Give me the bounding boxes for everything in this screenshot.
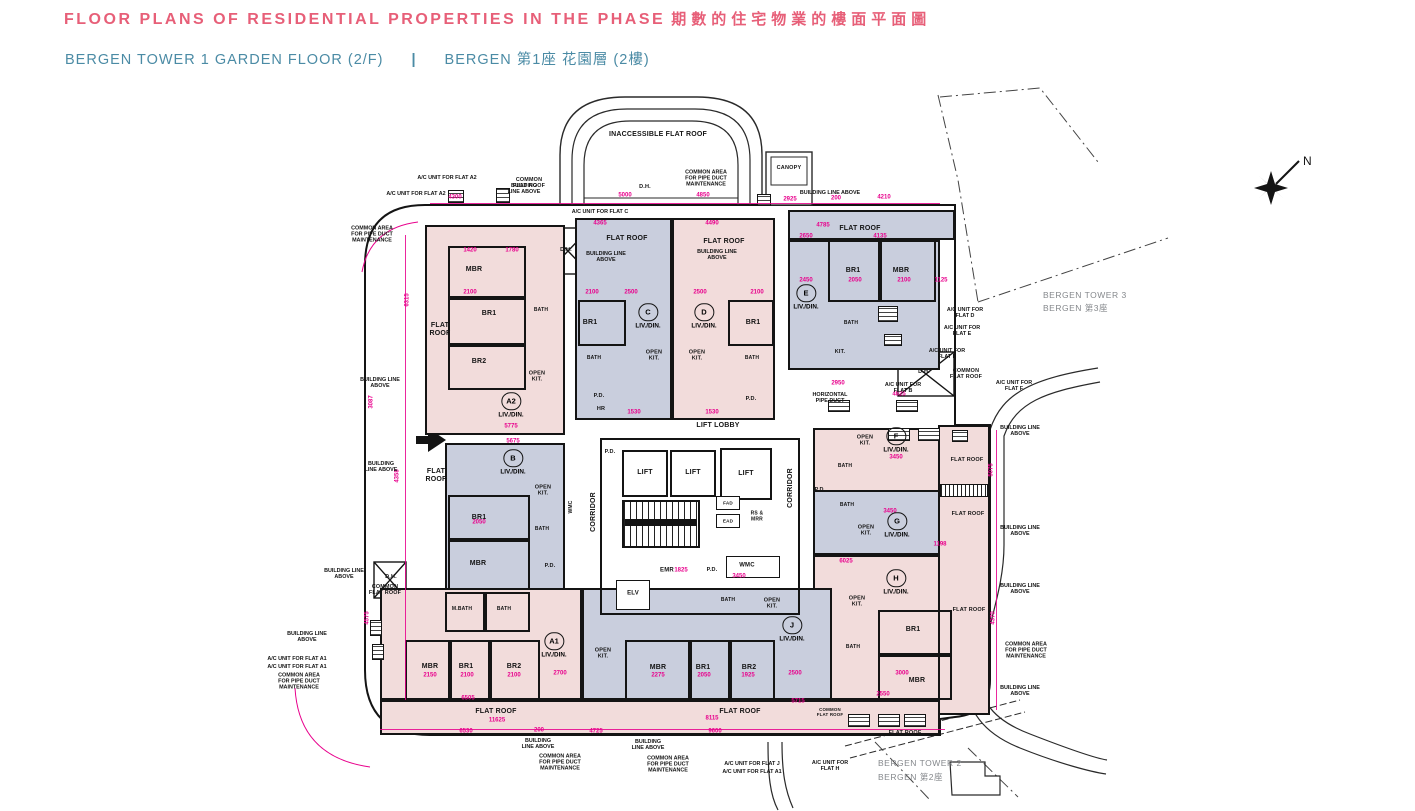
dimension-label: 9600 — [708, 729, 721, 736]
room-label: CORRIDOR — [590, 492, 598, 532]
unit-letter: F — [886, 427, 906, 445]
room-label: P.D. — [605, 449, 616, 455]
room-label: P.D. — [707, 567, 718, 573]
room-label: OPEN KIT. — [689, 350, 705, 363]
annotation-label: A/C UNIT FOR FLAT F — [996, 380, 1032, 392]
unit-badge-d: DLIV./DIN. — [691, 301, 716, 329]
dimension-label: 2925 — [783, 197, 796, 204]
plan-labels-layer: MBRBR1BR2FLAT ROOFBATHOPEN KIT.BR1BATHOP… — [0, 0, 1415, 811]
room-label: ELV — [627, 591, 639, 598]
dimension-label: 2100 — [750, 290, 763, 297]
room-label: FLAT ROOF — [952, 511, 985, 517]
room-label: INACCESSIBLE FLAT ROOF — [609, 131, 707, 139]
dimension-label: 2050 — [697, 673, 710, 680]
unit-letter: H — [886, 569, 906, 587]
dimension-label: 1198 — [933, 542, 946, 549]
dimension-label: 2100 — [897, 278, 910, 285]
landmark-label: BERGEN TOWER 2 — [878, 759, 962, 769]
landmark-label: BERGEN 第3座 — [1043, 304, 1108, 314]
unit-badge-c: CLIV./DIN. — [635, 301, 660, 329]
room-label: BR1 — [746, 319, 761, 327]
annotation-label: BUILDING LINE ABOVE — [697, 249, 737, 261]
unit-livdin-label: LIV./DIN. — [883, 446, 908, 453]
room-label: FLAT ROOF — [951, 457, 984, 463]
room-label: BR2 — [472, 358, 487, 366]
unit-livdin-label: LIV./DIN. — [498, 411, 523, 418]
room-label: BATH — [587, 356, 601, 362]
unit-livdin-label: LIV./DIN. — [883, 588, 908, 595]
room-label: P.D. — [594, 393, 605, 399]
dimension-label: 2100 — [463, 290, 476, 297]
unit-badge-a2: A2LIV./DIN. — [498, 390, 523, 418]
unit-livdin-label: LIV./DIN. — [635, 322, 660, 329]
room-label: WMC — [739, 563, 755, 570]
annotation-label: BUILDING LINE ABOVE — [632, 739, 665, 751]
dimension-label: 3450 — [889, 455, 902, 462]
dimension-label: 5000 — [618, 193, 631, 200]
landmark-label: BERGEN 第2座 — [878, 773, 943, 783]
unit-badge-j: JLIV./DIN. — [779, 614, 804, 642]
unit-badge-e: ELIV./DIN. — [793, 282, 818, 310]
room-label: COMMON FLAT ROOF — [950, 368, 982, 380]
annotation-label: BUILDING LINE ABOVE — [1000, 685, 1040, 697]
annotation-label: A/C UNIT FOR FLAT A2 — [386, 191, 445, 197]
room-label: BATH — [840, 503, 854, 509]
room-label: BATH — [838, 464, 852, 470]
dimension-label: 1125 — [934, 278, 947, 285]
annotation-label: A/C UNIT FOR FLAT E — [944, 325, 980, 337]
room-label: D.H. — [385, 574, 397, 580]
room-label: OPEN KIT. — [764, 598, 780, 611]
room-label: MBR — [893, 267, 910, 275]
unit-badge-a1: A1LIV./DIN. — [541, 630, 566, 658]
dimension-label: 4725 — [589, 729, 602, 736]
room-label: MBR — [422, 663, 439, 671]
room-label: COMMON FLAT ROOF — [369, 584, 401, 596]
dimension-label: 1925 — [741, 673, 754, 680]
room-label: LIFT — [685, 469, 701, 477]
unit-letter: G — [887, 512, 907, 530]
room-label: CORRIDOR — [787, 468, 795, 508]
dimension-label: 2500 — [788, 671, 801, 678]
dimension-label: 6505 — [461, 696, 474, 703]
unit-letter: E — [796, 284, 816, 302]
unit-badge-h: HLIV./DIN. — [883, 567, 908, 595]
dimension-label: 4370 — [991, 611, 998, 624]
dimension-label: 2050 — [472, 520, 485, 527]
annotation-label: A/C UNIT FOR FLAT D — [947, 307, 983, 319]
unit-badge-g: GLIV./DIN. — [884, 510, 909, 538]
annotation-label: BUILDING LINE ABOVE — [287, 631, 327, 643]
dimension-label: 5775 — [504, 424, 517, 431]
unit-livdin-label: LIV./DIN. — [884, 531, 909, 538]
annotation-label: A/C UNIT FOR FLAT B — [885, 382, 921, 394]
room-label: FLAT ROOF — [889, 730, 922, 736]
dimension-label: 1530 — [627, 410, 640, 417]
dimension-label: 5715 — [791, 699, 804, 706]
room-label: BATH — [745, 356, 759, 362]
dimension-label: 4210 — [877, 195, 890, 202]
dimension-label: 5675 — [506, 439, 519, 446]
dimension-label: 1780 — [505, 248, 518, 255]
dimension-label: 4300 — [448, 195, 461, 202]
dimension-label: 2100 — [507, 673, 520, 680]
room-label: RS & MRR — [751, 511, 764, 523]
annotation-label: BUILDING LINE ABOVE — [522, 738, 555, 750]
room-label: OPEN KIT. — [529, 371, 545, 384]
room-label: BATH — [534, 308, 548, 314]
annotation-label: A/C UNIT FOR FLAT C — [572, 209, 629, 215]
room-label: BR1 — [696, 664, 711, 672]
room-label: EMR — [660, 568, 674, 575]
room-label: BATH — [497, 607, 511, 613]
dimension-label: 4850 — [696, 193, 709, 200]
dimension-label: 6025 — [839, 559, 852, 566]
room-label: BATH — [846, 645, 860, 651]
unit-letter: D — [694, 303, 714, 321]
dimension-label: 2050 — [848, 278, 861, 285]
unit-letter: C — [638, 303, 658, 321]
unit-badge-f: FLIV./DIN. — [883, 425, 908, 453]
unit-livdin-label: LIV./DIN. — [691, 322, 716, 329]
dimension-label: 5075 — [989, 463, 996, 476]
room-label: OPEN KIT. — [535, 485, 551, 498]
annotation-label: BUILDING LINE ABOVE — [324, 568, 364, 580]
annotation-label: A/C UNIT FOR FLAT J — [724, 761, 780, 767]
dimension-label: 2500 — [624, 290, 637, 297]
room-label: D.H. — [639, 184, 651, 190]
room-label: BATH — [844, 321, 858, 327]
room-label: MBR — [909, 677, 926, 685]
annotation-label: A/C UNIT FOR FLAT A1 — [722, 769, 781, 775]
room-label: BATH — [535, 527, 549, 533]
room-label: EAD — [723, 518, 733, 523]
dimension-label: 6315 — [405, 293, 412, 306]
annotation-label: BUILDING LINE ABOVE — [508, 183, 541, 195]
floor-plan-sheet: { "header": { "title_en": "FLOOR PLANS O… — [0, 0, 1415, 811]
annotation-label: BUILDING LINE ABOVE — [360, 377, 400, 389]
annotation-label: A/C UNIT FOR FLAT E — [929, 348, 965, 360]
unit-letter: J — [782, 616, 802, 634]
room-label: OPEN KIT. — [858, 525, 874, 538]
room-label: BR2 — [507, 663, 522, 671]
room-label: BR2 — [742, 664, 757, 672]
dimension-label: 4135 — [873, 234, 886, 241]
room-label: OPEN KIT. — [595, 648, 611, 661]
annotation-label: A/C UNIT FOR FLAT A1 — [267, 664, 326, 670]
unit-letter: A2 — [501, 392, 521, 410]
room-label: BR1 — [459, 663, 474, 671]
annotation-label: A/C UNIT FOR FLAT A2 — [417, 175, 476, 181]
room-label: MBR — [470, 560, 487, 568]
room-label: OPEN KIT. — [646, 350, 662, 363]
annotation-label: BUILDING LINE ABOVE — [365, 461, 398, 473]
dimension-label: 3450 — [732, 574, 745, 581]
room-label: LIFT — [637, 469, 653, 477]
room-label: D.H. — [918, 369, 930, 375]
annotation-label: A/C UNIT FOR FLAT H — [812, 760, 848, 772]
room-label: FLAT ROOF — [703, 238, 744, 246]
dimension-label: 1530 — [705, 410, 718, 417]
unit-livdin-label: LIV./DIN. — [500, 468, 525, 475]
room-label: KIT. — [835, 349, 846, 355]
room-label: BR1 — [846, 267, 861, 275]
dimension-label: 2100 — [585, 290, 598, 297]
room-label: CANOPY — [777, 165, 802, 171]
room-label: FLAT ROOF — [839, 225, 880, 233]
dimension-label: 200 — [831, 196, 841, 203]
dimension-label: 8115 — [705, 716, 718, 723]
dimension-label: 4575 — [365, 611, 372, 624]
annotation-label: COMMON AREA FOR PIPE DUCT MAINTENANCE — [539, 754, 581, 773]
annotation-label: BUILDING LINE ABOVE — [1000, 525, 1040, 537]
unit-livdin-label: LIV./DIN. — [793, 303, 818, 310]
annotation-label: BUILDING LINE ABOVE — [1000, 425, 1040, 437]
room-label: MBR — [466, 266, 483, 274]
annotation-label: COMMON AREA FOR PIPE DUCT MAINTENANCE — [1005, 642, 1047, 661]
room-label: FLAT ROOF — [719, 708, 760, 716]
dimension-label: 1825 — [674, 568, 687, 575]
room-label: OPEN KIT. — [849, 596, 865, 609]
unit-livdin-label: LIV./DIN. — [779, 635, 804, 642]
room-label: P.D. — [746, 396, 757, 402]
annotation-label: BUILDING LINE ABOVE — [800, 190, 860, 196]
room-label: LIFT — [738, 470, 754, 478]
annotation-label: BUILDING LINE ABOVE — [586, 251, 626, 263]
room-label: BR1 — [583, 319, 598, 327]
room-label: P.D. — [545, 563, 556, 569]
dimension-label: 2100 — [460, 673, 473, 680]
dimension-label: 6530 — [459, 729, 472, 736]
dimension-label: 2275 — [651, 673, 664, 680]
dimension-label: 2650 — [799, 234, 812, 241]
room-label: FLAT ROOF — [429, 322, 450, 338]
annotation-label: COMMON AREA FOR PIPE DUCT MAINTENANCE — [278, 673, 320, 692]
dimension-label: 4490 — [705, 221, 718, 228]
room-label: OPEN KIT. — [857, 435, 873, 448]
room-label: M.BATH — [452, 607, 472, 613]
dimension-label: 4365 — [593, 221, 606, 228]
dimension-label: 2550 — [876, 692, 889, 699]
annotation-label: A/C UNIT FOR FLAT A1 — [267, 656, 326, 662]
dimension-label: 2150 — [423, 673, 436, 680]
annotation-label: COMMON AREA FOR PIPE DUCT MAINTENANCE — [685, 170, 727, 189]
dimension-label: 1420 — [463, 248, 476, 255]
room-label: FLAT ROOF — [953, 607, 986, 613]
annotation-label: COMMON AREA FOR PIPE DUCT MAINTENANCE — [647, 756, 689, 775]
unit-badge-b: BLIV./DIN. — [500, 447, 525, 475]
dimension-label: 2500 — [693, 290, 706, 297]
room-label: LIFT LOBBY — [696, 422, 739, 430]
annotation-label: HORIZONTAL PIPE DUCT — [813, 392, 848, 404]
annotation-label: BUILDING LINE ABOVE — [1000, 583, 1040, 595]
room-label: COMMON FLAT ROOF — [817, 707, 844, 717]
room-label: P.D. — [815, 487, 826, 493]
room-label: FLAT ROOF — [475, 708, 516, 716]
unit-letter: B — [503, 449, 523, 467]
unit-livdin-label: LIV./DIN. — [541, 651, 566, 658]
room-label: WMC — [569, 500, 575, 513]
dimension-label: 3000 — [895, 671, 908, 678]
room-label: HR — [597, 406, 605, 412]
room-label: MBR — [650, 664, 667, 672]
room-label: BR1 — [906, 626, 921, 634]
room-label: D.H. — [560, 247, 572, 253]
landmark-label: BERGEN TOWER 3 — [1043, 291, 1127, 301]
dimension-label: 4785 — [816, 223, 829, 230]
dimension-label: 3087 — [369, 395, 376, 408]
dimension-label: 2700 — [553, 671, 566, 678]
unit-letter: A1 — [544, 632, 564, 650]
dimension-label: 11625 — [489, 718, 505, 725]
dimension-label: 2950 — [831, 381, 844, 388]
room-label: BR1 — [482, 310, 497, 318]
annotation-label: COMMON AREA FOR PIPE DUCT MAINTENANCE — [351, 226, 393, 245]
room-label: BATH — [721, 598, 735, 604]
room-label: FLAT ROOF — [425, 468, 446, 484]
dimension-label: 200 — [534, 728, 544, 735]
room-label: FLAT ROOF — [606, 235, 647, 243]
room-label: FAD — [723, 500, 733, 505]
